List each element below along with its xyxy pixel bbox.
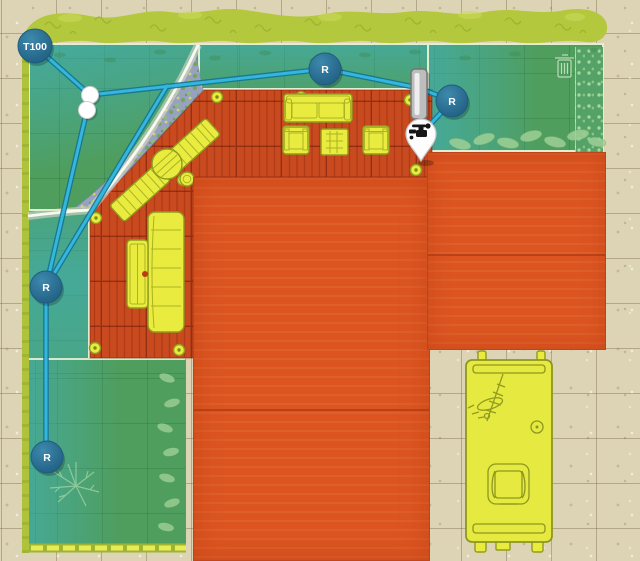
sprinkler-label: R (42, 282, 50, 294)
sprinkler-node[interactable]: R (30, 271, 64, 306)
sprinkler-label: R (448, 96, 456, 108)
sprinkler-node[interactable]: R (31, 441, 65, 476)
wall-gate[interactable] (411, 69, 430, 122)
pipe-line[interactable] (35, 46, 452, 457)
pipe-junction[interactable] (79, 102, 96, 119)
pipe-outline (35, 46, 452, 457)
controller-node[interactable]: T100 (18, 29, 54, 66)
controller-label: T100 (23, 41, 47, 53)
sprinkler-node[interactable]: R (309, 53, 343, 88)
pipe-junction[interactable] (82, 87, 99, 104)
sprinkler-label: R (321, 64, 329, 76)
irrigation-network-layer: T100 R R R R (0, 0, 640, 561)
sprinkler-label: R (43, 452, 51, 464)
plan-canvas[interactable]: T100 R R R R (0, 0, 640, 561)
water-tap-pin[interactable] (406, 119, 436, 166)
